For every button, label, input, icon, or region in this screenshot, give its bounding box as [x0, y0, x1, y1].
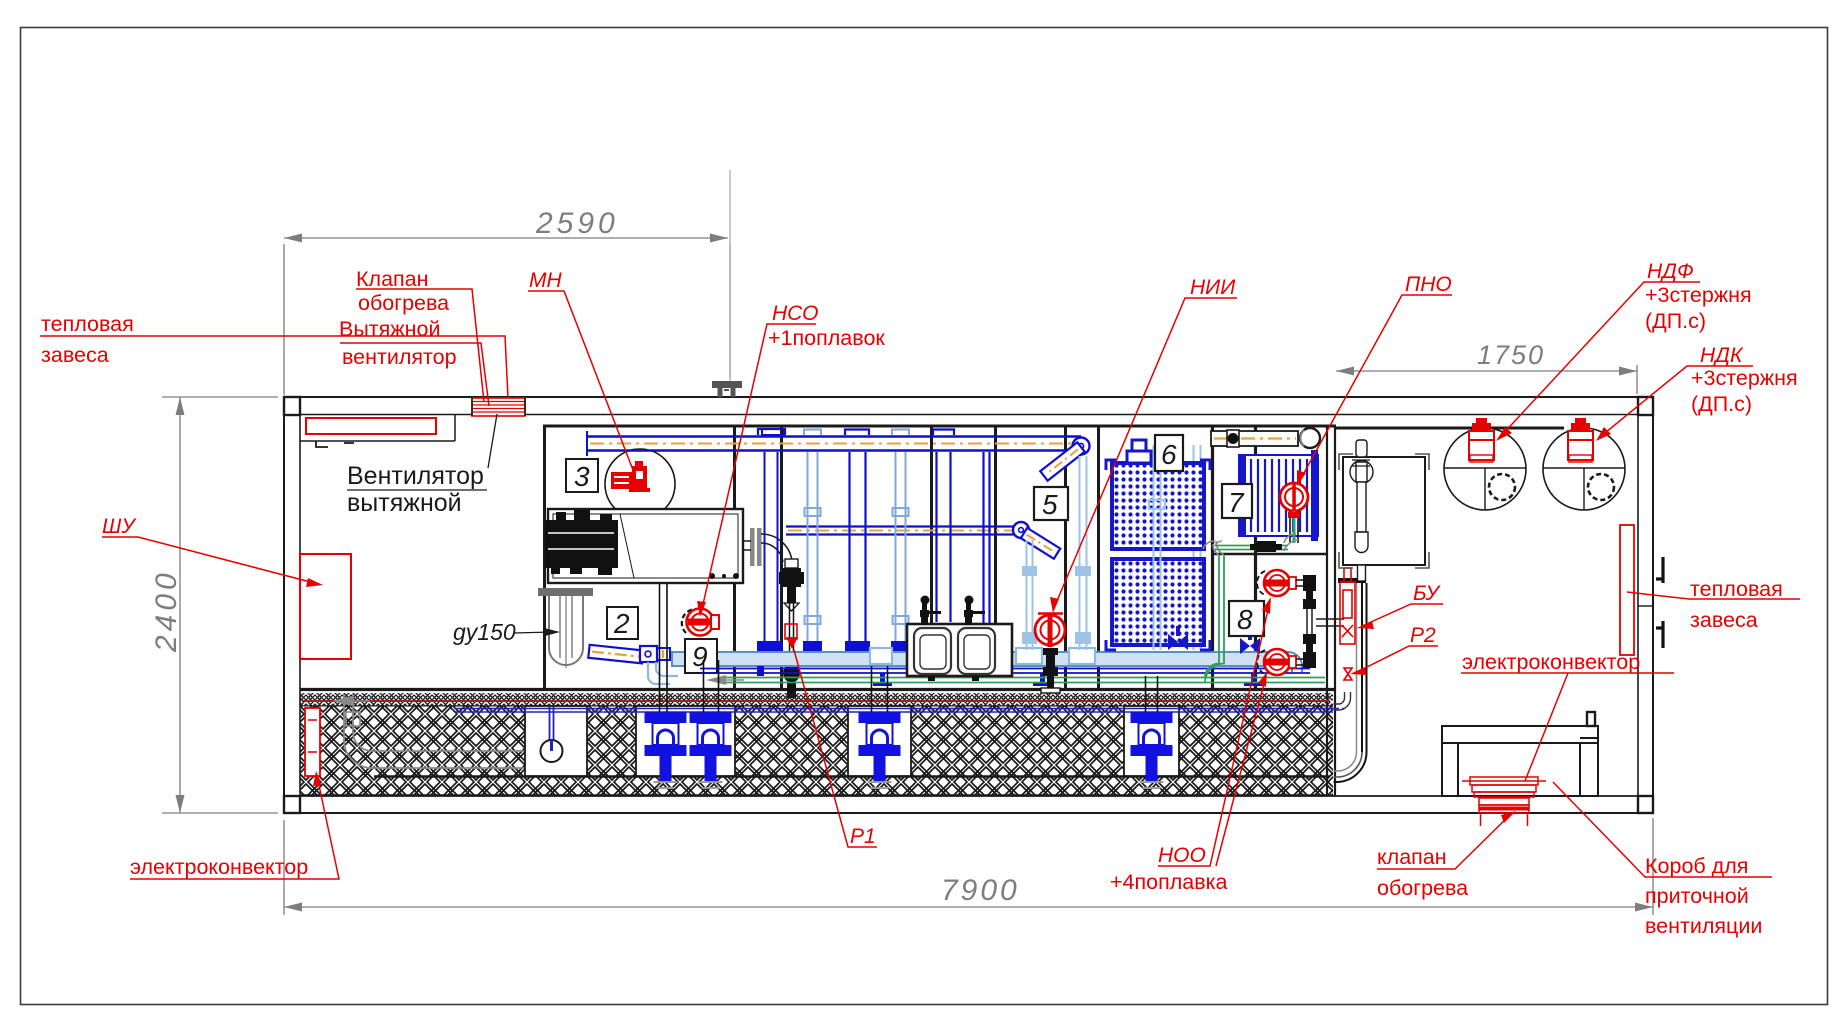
- svg-text:Р2: Р2: [1410, 624, 1436, 647]
- svg-text:НДФ: НДФ: [1647, 260, 1694, 283]
- svg-text:НИИ: НИИ: [1190, 276, 1236, 299]
- svg-text:7: 7: [1228, 487, 1245, 518]
- svg-text:НДК: НДК: [1700, 344, 1744, 367]
- svg-text:НОО: НОО: [1158, 844, 1206, 867]
- svg-text:клапан: клапан: [1377, 845, 1447, 869]
- svg-text:БУ: БУ: [1413, 582, 1441, 605]
- svg-text:1750: 1750: [1477, 340, 1545, 370]
- svg-text:обогрева: обогрева: [1377, 876, 1468, 900]
- svg-text:ШУ: ШУ: [102, 515, 137, 538]
- svg-text:8: 8: [1237, 604, 1253, 635]
- svg-text:приточной: приточной: [1645, 884, 1749, 908]
- svg-text:Р1: Р1: [850, 825, 876, 848]
- svg-text:вентиляции: вентиляции: [1645, 914, 1762, 938]
- svg-text:тепловая: тепловая: [1690, 577, 1783, 601]
- svg-text:+4поплавка: +4поплавка: [1110, 870, 1228, 894]
- svg-text:Короб для: Короб для: [1645, 854, 1748, 878]
- svg-text:2400: 2400: [150, 569, 183, 653]
- svg-text:Вентилятор: Вентилятор: [347, 462, 484, 490]
- svg-text:3: 3: [574, 461, 590, 492]
- svg-text:электроконвектор: электроконвектор: [130, 855, 308, 879]
- svg-text:ПНО: ПНО: [1405, 273, 1452, 296]
- svg-text:2590: 2590: [535, 207, 619, 240]
- svg-text:тепловая: тепловая: [41, 312, 134, 336]
- svg-text:МН: МН: [529, 269, 562, 292]
- svg-text:вентилятор: вентилятор: [342, 345, 457, 369]
- svg-text:завеса: завеса: [1690, 608, 1758, 632]
- svg-text:завеса: завеса: [41, 343, 109, 367]
- svg-text:7900: 7900: [941, 874, 1020, 907]
- svg-text:Клапан: Клапан: [356, 267, 429, 291]
- svg-text:+1поплавок: +1поплавок: [768, 326, 885, 350]
- svg-text:gy150: gy150: [453, 619, 516, 645]
- svg-text:НСО: НСО: [772, 302, 818, 325]
- svg-text:5: 5: [1042, 489, 1058, 520]
- svg-text:+3стержня: +3стержня: [1645, 283, 1752, 307]
- svg-text:2: 2: [613, 608, 630, 639]
- svg-text:электроконвектор: электроконвектор: [1462, 650, 1640, 674]
- svg-text:обогрева: обогрева: [358, 291, 449, 315]
- svg-text:Вытяжной: Вытяжной: [339, 317, 441, 341]
- svg-text:6: 6: [1161, 439, 1177, 470]
- svg-text:(ДП.с): (ДП.с): [1645, 309, 1706, 333]
- svg-text:(ДП.с): (ДП.с): [1691, 392, 1752, 416]
- svg-text:+3стержня: +3стержня: [1691, 366, 1798, 390]
- svg-text:9: 9: [692, 641, 708, 672]
- svg-text:вытяжной: вытяжной: [347, 489, 462, 517]
